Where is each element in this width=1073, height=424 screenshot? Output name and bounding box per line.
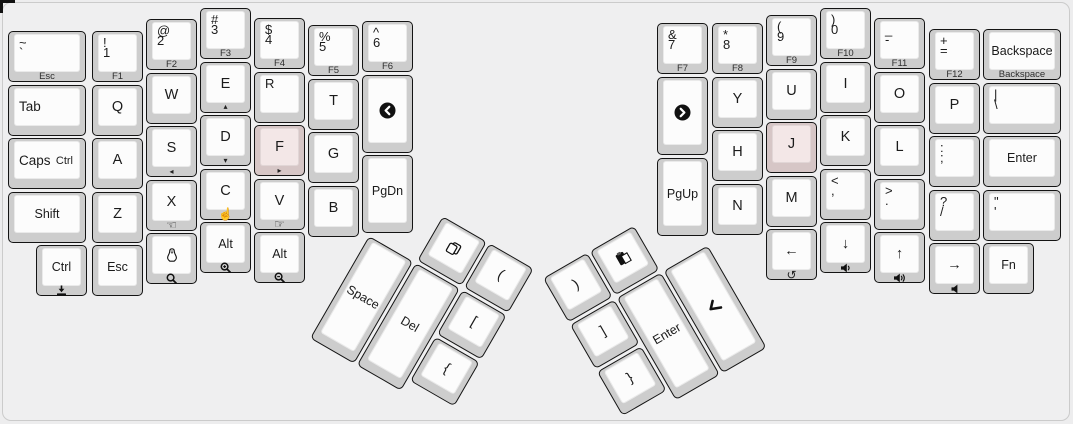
key-enter[interactable]: Enter [983, 136, 1061, 187]
keycap-top: _- [880, 21, 919, 59]
key-w[interactable]: W [146, 73, 197, 124]
key-legend: Esc [9, 72, 85, 82]
key-linux[interactable] [146, 233, 197, 284]
key-caps[interactable]: CapsCtrl [8, 138, 86, 189]
key-legend: PgDn [368, 158, 407, 223]
keycap-top: J [772, 125, 811, 163]
keycap-top: F [260, 128, 299, 166]
key-q[interactable]: Q [92, 85, 143, 136]
key-legend: - [885, 32, 889, 47]
key-tilde[interactable]: ~`Esc [8, 31, 86, 82]
key-legend: F1 [93, 72, 142, 82]
key-legend: Enter [989, 139, 1055, 177]
keycap-top: Backspace [989, 32, 1055, 70]
key-b[interactable]: B [308, 186, 359, 237]
keycap-top: !1 [98, 34, 137, 72]
key-legend: / [940, 204, 944, 219]
key-legend: F5 [309, 66, 358, 76]
keycap-top: Tab [14, 88, 80, 126]
key-d[interactable]: D▾ [200, 115, 251, 166]
keycap-top: Y [718, 80, 757, 118]
key-slash[interactable]: ?/ [929, 190, 980, 241]
key-a[interactable]: A [92, 138, 143, 189]
key-legend: F4 [255, 59, 304, 69]
key-legend: 1 [103, 45, 110, 60]
key-legend: 7 [668, 37, 675, 52]
key-legend: C [206, 172, 245, 210]
key-o[interactable]: O [874, 72, 925, 123]
key-legend: F9 [767, 56, 816, 66]
key-2[interactable]: @2F2 [146, 19, 197, 70]
keycap-top: Esc [98, 248, 137, 286]
key-legend: N [718, 187, 757, 225]
key-ctrl[interactable]: Ctrl [36, 245, 87, 296]
key-legend: T [314, 82, 353, 120]
key-l[interactable]: L [874, 125, 925, 176]
keycap-top: Shift [14, 195, 80, 233]
keycap-top: CapsCtrl [14, 141, 80, 179]
chevron-circle-right-icon [663, 80, 702, 145]
key-legend: L [880, 128, 919, 166]
key-semicolon[interactable]: :; [929, 136, 980, 187]
key-legend: G [314, 135, 353, 173]
key-legend: B [314, 189, 353, 227]
keycap-top: ~` [14, 34, 80, 72]
key-legend: Caps [19, 141, 51, 179]
keycap-top: M [772, 179, 811, 217]
keycap-top: PgUp [663, 161, 702, 226]
keycap-top: Alt [206, 225, 245, 263]
key-legend: F8 [713, 64, 762, 74]
key-arrow-left[interactable]: ←↺ [766, 229, 817, 280]
undo-icon: ↺ [767, 269, 816, 280]
search-icon [147, 273, 196, 284]
keycap-top: :; [935, 139, 974, 177]
key-legend: 9 [777, 29, 784, 44]
key-legend: = [940, 43, 948, 58]
keycap-top: H [718, 133, 757, 171]
key-legend: Z [98, 195, 137, 233]
keycap-top: V [260, 182, 299, 220]
key-p[interactable]: P [929, 83, 980, 134]
key-legend: Alt [260, 235, 299, 273]
key-5[interactable]: %5F5 [308, 25, 359, 76]
key-1[interactable]: !1F1 [92, 31, 143, 82]
keycap-top: %5 [314, 28, 353, 66]
key-legend: W [152, 76, 191, 114]
key-equals[interactable]: +=F12 [929, 29, 980, 80]
keycap-top: <, [826, 172, 865, 210]
key-legend: S [152, 129, 191, 167]
key-legend: U [772, 72, 811, 110]
keycap-top: &7 [663, 26, 702, 64]
key-shift[interactable]: Shift [8, 192, 86, 243]
keycap-top: Enter [989, 139, 1055, 177]
keycap-top: #3 [206, 11, 245, 49]
key-pgup[interactable]: PgUp [657, 158, 708, 236]
key-c[interactable]: C☝ [200, 169, 251, 220]
key-legend: E [206, 65, 245, 103]
key-legend: F6 [363, 62, 412, 72]
key-v[interactable]: V☞ [254, 179, 305, 230]
key-6[interactable]: ^6F6 [362, 21, 413, 72]
key-legend: 0 [831, 22, 838, 37]
keycap-top [368, 78, 407, 143]
key-y[interactable]: Y [712, 77, 763, 128]
key-f[interactable]: F▸ [254, 125, 305, 176]
key-legend: Backspace [984, 70, 1060, 80]
key-h[interactable]: H [712, 130, 763, 181]
keycap-top: )0 [826, 11, 865, 49]
key-tab[interactable]: Tab [8, 85, 86, 136]
key-r[interactable]: R [254, 72, 305, 123]
key-legend: Shift [14, 195, 80, 233]
key-legend: ; [940, 150, 944, 165]
keycap-top: PgDn [368, 158, 407, 223]
key-legend: ↑ [880, 235, 919, 273]
key-s[interactable]: S◂ [146, 126, 197, 177]
key-esc[interactable]: Esc [92, 245, 143, 296]
keycap-top: ↑ [880, 235, 919, 273]
triangle-right-icon: ▸ [255, 165, 304, 176]
keycap-top: @2 [152, 22, 191, 60]
keycap-top: U [772, 72, 811, 110]
key-t[interactable]: T [308, 79, 359, 130]
key-layer-left[interactable] [362, 75, 413, 153]
triangle-down-icon: ▾ [201, 155, 250, 166]
key-backslash[interactable]: |\ [983, 83, 1061, 134]
keycap-top: ← [772, 232, 811, 270]
volume-up-icon [875, 272, 924, 283]
key-legend: Q [98, 88, 137, 126]
keycap-top: C [206, 172, 245, 210]
keycap-top: E [206, 65, 245, 103]
key-arrow-down[interactable]: ↓ [820, 222, 871, 273]
key-fn[interactable]: Fn [983, 243, 1034, 294]
hand-right-icon: ☞ [255, 219, 304, 230]
key-m[interactable]: M [766, 176, 817, 227]
triangle-left-icon: ◂ [147, 166, 196, 177]
keycap-top: A [98, 141, 137, 179]
key-legend: M [772, 179, 811, 217]
key-legend: . [885, 193, 889, 208]
key-legend: F11 [875, 59, 924, 69]
key-x[interactable]: X☜ [146, 180, 197, 231]
keycap-top: X [152, 183, 191, 221]
keycap-top: → [935, 246, 974, 284]
key-legend: F [260, 128, 299, 166]
keycap-top: Q [98, 88, 137, 126]
keycap-top: L [880, 128, 919, 166]
key-legend: F7 [658, 64, 707, 74]
key-legend: Ctrl [42, 248, 81, 286]
keycap-top: K [826, 118, 865, 156]
key-legend: Alt [206, 225, 245, 263]
keycap-top: Fn [989, 246, 1028, 284]
keycap-top: G [314, 135, 353, 173]
key-layer-right[interactable] [657, 77, 708, 155]
search-minus-icon [255, 272, 304, 283]
key-e[interactable]: E▴ [200, 62, 251, 113]
key-legend: I [826, 65, 865, 103]
key-legend: P [935, 86, 974, 124]
key-legend: ← [772, 232, 811, 270]
key-pgdn[interactable]: PgDn [362, 155, 413, 233]
keycap-top: >. [880, 182, 919, 220]
key-legend: Fn [989, 246, 1028, 284]
key-legend: D [206, 118, 245, 156]
keycap-top: ?/ [935, 193, 974, 231]
key-legend: 3 [211, 22, 218, 37]
key-alt-left-1[interactable]: Alt [200, 222, 251, 273]
keycap-top: Alt [260, 235, 299, 273]
key-legend: J [772, 125, 811, 163]
keycap-top [152, 236, 191, 274]
key-legend: H [718, 133, 757, 171]
key-legend: 8 [723, 37, 730, 52]
key-legend: Backspace [989, 32, 1055, 70]
keycap-top: B [314, 189, 353, 227]
keycap-top: R [260, 75, 299, 113]
search-plus-icon [201, 262, 250, 273]
keycap-top: O [880, 75, 919, 113]
key-legend: \ [994, 97, 998, 112]
key-legend: 2 [157, 33, 164, 48]
key-k[interactable]: K [820, 115, 871, 166]
keycap-top: W [152, 76, 191, 114]
keycap-top: I [826, 65, 865, 103]
key-z[interactable]: Z [92, 192, 143, 243]
key-period[interactable]: >. [874, 179, 925, 230]
key-legend: X [152, 183, 191, 221]
keycap-top: D [206, 118, 245, 156]
key-legend: K [826, 118, 865, 156]
volume-down-icon [821, 262, 870, 273]
keycap-top: *8 [718, 26, 757, 64]
key-legend: 6 [373, 35, 380, 50]
keycap-top: $4 [260, 21, 299, 59]
key-legend: Y [718, 80, 757, 118]
keycap-top: |\ [989, 86, 1055, 124]
key-legend: Ctrl [56, 155, 73, 167]
keycap-top: P [935, 86, 974, 124]
key-arrow-right[interactable]: → [929, 243, 980, 294]
key-legend: Esc [98, 248, 137, 286]
key-g[interactable]: G [308, 132, 359, 183]
key-minus[interactable]: _-F11 [874, 18, 925, 69]
key-legend: ↓ [826, 225, 865, 263]
triangle-up-icon: ▴ [201, 102, 250, 113]
key-u[interactable]: U [766, 69, 817, 120]
key-legend: O [880, 75, 919, 113]
key-comma[interactable]: <, [820, 169, 871, 220]
key-n[interactable]: N [712, 184, 763, 235]
key-legend: Tab [19, 88, 41, 126]
key-9[interactable]: (9F9 [766, 15, 817, 66]
key-legend: ` [19, 45, 23, 60]
keycap-top: (9 [772, 18, 811, 56]
keycap-top: ↓ [826, 225, 865, 263]
key-i[interactable]: I [820, 62, 871, 113]
keycap-top: += [935, 32, 974, 70]
key-legend: F2 [147, 60, 196, 70]
key-legend: 5 [319, 39, 326, 54]
linux-icon [152, 236, 191, 274]
key-legend: PgUp [663, 161, 702, 226]
key-alt-left-2[interactable]: Alt [254, 232, 305, 283]
keycap-top: Ctrl [42, 248, 81, 286]
key-quote[interactable]: "' [983, 190, 1061, 241]
hand-up-icon: ☝ [201, 209, 250, 220]
key-legend: ' [994, 204, 996, 219]
keycap-top: S [152, 129, 191, 167]
key-legend: R [265, 76, 274, 91]
keycap-top: "' [989, 193, 1055, 231]
key-8[interactable]: *8F8 [712, 23, 763, 74]
key-j[interactable]: J [766, 122, 817, 173]
key-7[interactable]: &7F7 [657, 23, 708, 74]
key-legend: F10 [821, 49, 870, 59]
key-0[interactable]: )0F10 [820, 8, 871, 59]
key-backspace[interactable]: BackspaceBackspace [983, 29, 1061, 80]
volume-mute-icon [930, 283, 979, 294]
download-icon [37, 285, 86, 296]
key-3[interactable]: #3F3 [200, 8, 251, 59]
keyboard-layout-screen: ~`Esc!1F1@2F2#3F3$4F4%5F5^6F6TabQWE▴RTCa… [0, 0, 1073, 424]
keycap-top: Z [98, 195, 137, 233]
key-legend: 4 [265, 32, 272, 47]
chevron-circle-left-icon [368, 78, 407, 143]
key-4[interactable]: $4F4 [254, 18, 305, 69]
key-legend: V [260, 182, 299, 220]
key-arrow-up[interactable]: ↑ [874, 232, 925, 283]
hand-left-icon: ☜ [147, 220, 196, 231]
key-legend: A [98, 141, 137, 179]
keycap-top: N [718, 187, 757, 225]
key-legend: F12 [930, 70, 979, 80]
key-legend: F3 [201, 49, 250, 59]
keycap-top [663, 80, 702, 145]
keycap-top: ^6 [368, 24, 407, 62]
key-legend: → [935, 246, 974, 284]
keycap-top: T [314, 82, 353, 120]
key-legend: , [831, 183, 835, 198]
